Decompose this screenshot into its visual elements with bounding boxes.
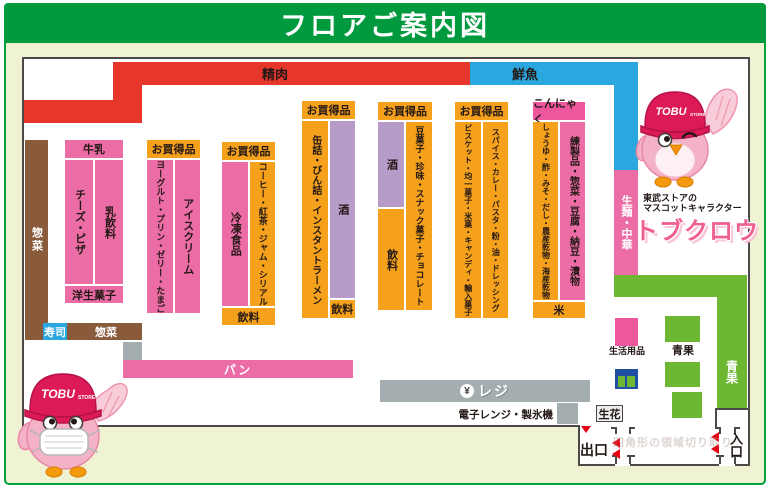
shelf-subfooter: 飲料 (330, 300, 356, 318)
shelf-footer: 飲料 (222, 308, 275, 325)
shelf-col: ビスケット・均一菓子・米菓・キャンディ・輸入菓子 (464, 124, 472, 316)
zone-noodles-label: 生麺・中華 (618, 195, 634, 250)
svg-text:STORE: STORE (78, 395, 96, 401)
shelf-subfooter: 飲料 (386, 249, 397, 271)
entrance-door-gap (719, 462, 735, 466)
zone-sozai-left-bar: 惣菜 (25, 140, 48, 340)
shelf-header: こんにゃく (533, 102, 585, 120)
door-mark (716, 455, 724, 457)
shelf-header: お買得品 (222, 142, 275, 160)
zone-sozai-bottom-label: 惣菜 (73, 323, 139, 340)
shelf-header: お買得品 (147, 140, 200, 158)
shelf-block-canned: お買得品 缶詰・びん詰・インスタントラーメン 酒 飲料 (302, 101, 355, 318)
mascot-owl-mask-icon: TOBU STORE (8, 362, 134, 484)
shelf-header: お買得品 (455, 102, 508, 120)
door-mark (629, 427, 635, 429)
title-bar: フロアご案内図 (4, 3, 766, 43)
svg-text:STORE: STORE (690, 112, 705, 117)
register-bar: ¥ レジ (380, 380, 590, 402)
exit-door-gap (615, 462, 630, 466)
shelf-footer: 洋生菓子 (65, 286, 123, 303)
shelf-block-snacks: お買得品 酒 飲料 豆菓子・珍味・スナック菓子・チョコレート (378, 102, 432, 310)
shelf-footer: 米 (533, 302, 585, 318)
wall-segment (715, 408, 717, 427)
zone-produce-bar-label: 青果 (724, 360, 741, 384)
exit-flow-arrow-icon (581, 426, 591, 433)
svg-text:TOBU: TOBU (656, 106, 688, 118)
wall-segment (715, 408, 748, 410)
register-label: レジ (478, 381, 510, 401)
shelf-col: 酒 (386, 159, 397, 170)
page-title: フロアご案内図 (280, 4, 490, 43)
zone-sushi-label: 寿司 (43, 323, 67, 340)
microwave-block (557, 403, 578, 424)
daily-goods-square (615, 318, 638, 346)
shelf-col: スパイス・カレー・パスタ・粉・油・ドレッシング (491, 128, 499, 312)
produce-label: 青果 (658, 342, 708, 357)
door-mark (719, 456, 721, 464)
shelf-col: 冷凍食品 (229, 212, 240, 256)
shelf-block-biscuits-spice: お買得品 ビスケット・均一菓子・米菓・キャンディ・輸入菓子 スパイス・カレー・パ… (455, 102, 508, 318)
shelf-col: 缶詰・びん詰・インスタントラーメン (310, 135, 320, 305)
zone-meat-left-bar (24, 100, 142, 123)
mascot-caption: 東武ストアの マスコットキャラクター (643, 193, 753, 213)
produce-square (665, 362, 700, 387)
shelf-block-dairy-ice: お買得品 ヨーグルト・プリン・ゼリー・たまご アイスクリーム (147, 140, 200, 307)
zone-fish-label: 鮮魚 (470, 62, 580, 85)
microwave-label: 電子レンジ・製氷機 (435, 407, 553, 421)
zone-produce-right-bar: 青果 (717, 275, 747, 408)
zone-meat-label: 精肉 (113, 62, 437, 85)
shelf-col: 酒 (337, 204, 348, 215)
shelf-col: アイスクリーム (182, 198, 193, 275)
snip-watermark: 四角形の領域切り取り (598, 434, 748, 450)
mascot-owl-wink-icon: TOBU STORE (627, 86, 745, 190)
cart-fixture-icon (615, 369, 638, 389)
daily-goods-label: 生活用品 (603, 347, 651, 367)
exit-arrow-icon (612, 449, 620, 459)
door-mark (627, 455, 635, 457)
shelf-col: 練製品・惣菜・豆腐・納豆・漬物 (568, 136, 578, 286)
zone-sozai-left-label: 惣菜 (29, 227, 45, 253)
shelf-col: コーヒー・紅茶・ジャム・シリアル (258, 162, 267, 306)
shelf-col: 乳飲料 (104, 206, 115, 239)
zone-bread-label: パン (224, 361, 253, 378)
door-mark (611, 427, 617, 429)
door-mark (629, 456, 631, 464)
shelf-block-milk: 牛乳 チーズ・ピザ 乳飲料 洋生菓子 (65, 140, 123, 303)
shelf-block-konnyaku: こんにゃく しょうゆ・酢・みそ・だし・農産乾物・海産乾物 練製品・惣菜・豆腐・納… (533, 102, 585, 318)
yen-icon: ¥ (460, 384, 474, 398)
produce-square (665, 316, 700, 342)
shelf-header: お買得品 (302, 101, 355, 119)
fixture-gray-block (123, 342, 142, 360)
zone-sozai-bottom-bar: 寿司 惣菜 (25, 323, 142, 340)
shelf-col: チーズ・ピザ (74, 189, 85, 255)
shelf-col: しょうゆ・酢・みそ・だし・農産乾物・海産乾物 (542, 123, 550, 299)
shelf-block-frozen: お買得品 冷凍食品 コーヒー・紅茶・ジャム・シリアル 飲料 (222, 142, 275, 318)
shelf-col: ヨーグルト・プリン・ゼリー・たまご (155, 160, 164, 313)
shelf-col: 豆菓子・珍味・スナック菓子・チョコレート (415, 126, 424, 306)
flowers-label: 生花 (596, 405, 623, 422)
shelf-header: 牛乳 (65, 140, 123, 158)
door-mark (715, 427, 721, 429)
zone-bread-bar: パン (123, 360, 353, 378)
produce-square (672, 392, 702, 418)
mascot-name: トブクロウ (634, 211, 759, 246)
svg-text:TOBU: TOBU (41, 387, 75, 401)
shelf-header: お買得品 (378, 102, 432, 120)
